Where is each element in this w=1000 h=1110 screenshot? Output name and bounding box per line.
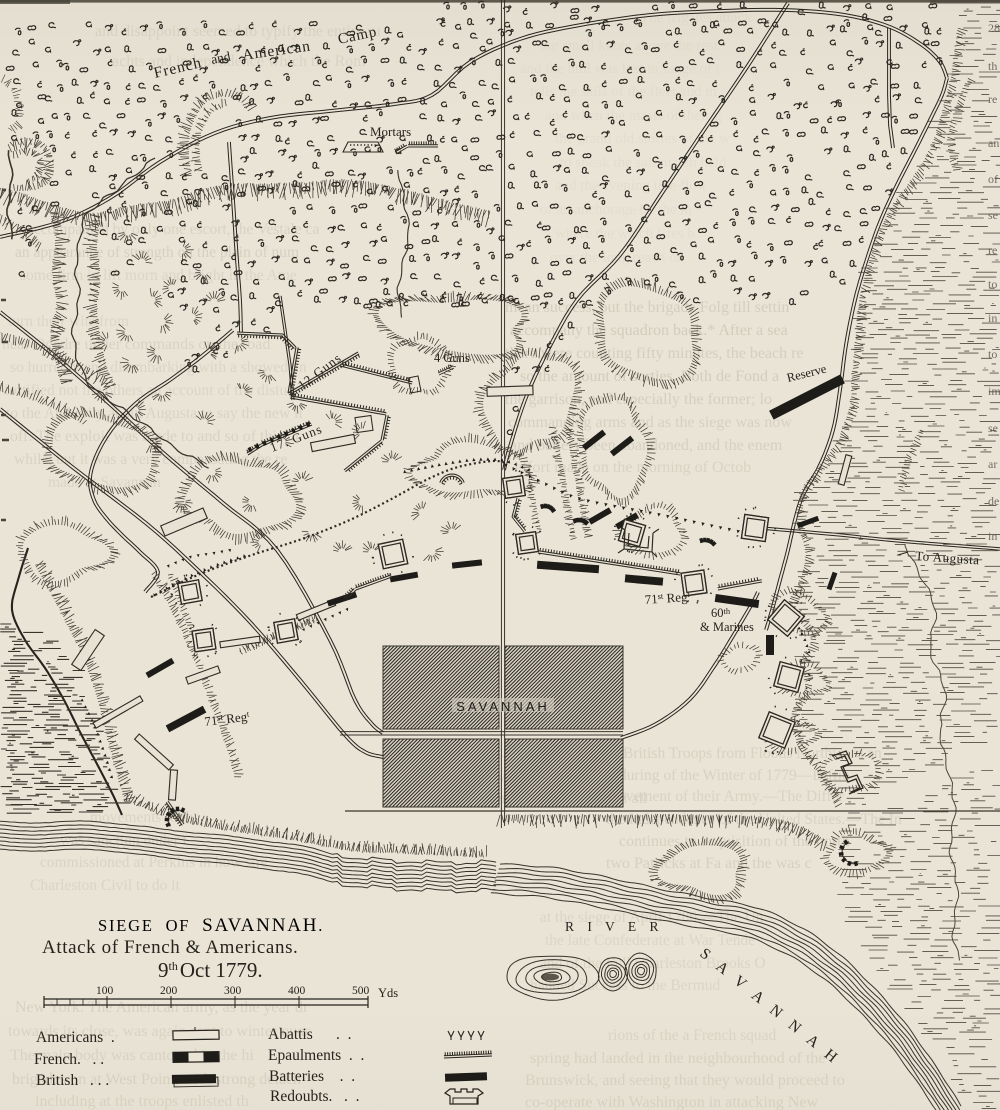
svg-text:to: to [988, 277, 997, 291]
svg-text:28: 28 [988, 21, 1000, 35]
svg-text:Batteries . .: Batteries . . [269, 1068, 355, 1085]
svg-text:off. The exploit was made to: off. The exploit was made to and so of t… [10, 428, 301, 445]
svg-text:and the hull was lost in range: and the hull was lost in range of t [520, 61, 721, 77]
svg-text:Abattis . .: Abattis . . [268, 1026, 352, 1043]
svg-text:where the watch fires b: where the watch fires b [555, 226, 695, 242]
svg-text:Charleston Civil to do it: Charleston Civil to do it [30, 877, 181, 894]
svg-text:near Ogedre under commands on: near Ogedre under commands on the road [2, 336, 270, 353]
svg-text:British Troops from Floods Nor: British Troops from Floods Northward an [623, 745, 882, 762]
svg-text:the garrison, and especially t: the garrison, and especially the former;… [505, 391, 772, 408]
svg-text:400: 400 [288, 985, 306, 997]
svg-text:Brunswick, and seeing that the: Brunswick, and seeing that they would pr… [525, 1072, 845, 1089]
svg-text:Attack of French & Americans.: Attack of French & Americans. [42, 937, 298, 958]
svg-text:British . . .: British . . . [36, 1072, 109, 1089]
svg-text:of: of [988, 172, 998, 186]
svg-text:including at the troops enlist: including at the troops enlisted th [35, 1093, 249, 1110]
svg-text:turn their wits from: turn their wits from [8, 313, 129, 330]
svg-text:Americans .: Americans . [36, 1029, 115, 1046]
svg-text:Epaulments . .: Epaulments . . [268, 1047, 364, 1064]
svg-text:SAVANNAH: SAVANNAH [456, 699, 550, 714]
svg-text:the late Confederate at War Te: the late Confederate at War Tende [545, 932, 755, 949]
svg-text:commanding arms and as the sie: commanding arms and as the siege was now [508, 414, 792, 431]
svg-text:ar: ar [988, 457, 997, 471]
svg-text:the Independence of the United: the Independence of the United States.—T… [606, 811, 902, 828]
svg-text:Yds: Yds [378, 986, 398, 1000]
svg-text:se: se [988, 208, 998, 222]
svg-text:two Patricks at Fa and the was: two Patricks at Fa and the was c [606, 855, 812, 872]
svg-text:500: 500 [352, 985, 370, 997]
svg-text:accompany the squadron back.*: accompany the squadron back.* After a se… [510, 322, 788, 339]
svg-text:in: in [988, 529, 997, 543]
svg-text:rions of the a French squad: rions of the a French squad [608, 1027, 777, 1044]
svg-text:th: th [988, 59, 997, 73]
svg-text:effort made on the morning of: effort made on the morning of Octob [515, 459, 751, 476]
svg-text:handed Success to the Bermud: handed Success to the Bermud [530, 977, 721, 994]
svg-text:and the evening tide flow: and the evening tide flow [555, 178, 708, 194]
svg-text:re: re [988, 92, 997, 106]
svg-text:to the Authority about Augusta: to the Authority about Augusta to say th… [6, 405, 303, 422]
svg-text:Mortars: Mortars [370, 124, 411, 139]
svg-text:& Marines: & Marines [700, 620, 754, 634]
svg-text:French. . .: French. . . [34, 1051, 104, 1068]
svg-text:SIEGE OF SAVANNAH.: SIEGE OF SAVANNAH. [98, 915, 324, 936]
svg-text:R I V E R: R I V E R [565, 919, 664, 934]
svg-text:300: 300 [224, 985, 242, 997]
svg-text:during of the Winter of 1779—D: during of the Winter of 1779—Diffic [619, 767, 849, 784]
svg-text:100: 100 [96, 985, 114, 997]
svg-text:mean success, but the brigade: mean success, but the brigade Folg till … [505, 299, 789, 316]
svg-text:co-operate with Washington in: co-operate with Washington in attacking … [525, 1094, 818, 1110]
svg-text:of an anchorage by the m: of an anchorage by the m [540, 202, 692, 218]
svg-text:Redoubts. . .: Redoubts. . . [270, 1088, 360, 1105]
svg-text:New York. The American army,: New York. The American army, as the year… [15, 999, 309, 1016]
svg-text:spring had landed in the neigh: spring had landed in the neighbourhood o… [530, 1050, 826, 1067]
svg-text:tells the sails of the fleet a: tells the sails of the fleet and m [530, 84, 717, 100]
svg-text:200: 200 [160, 985, 178, 997]
svg-text:4 Guns: 4 Guns [434, 351, 470, 365]
svg-text:accompanied by only one escort: accompanied by only one escort, the Vest… [27, 221, 320, 238]
svg-text:se: se [988, 421, 998, 435]
svg-text:71st Regt: 71st Regt [644, 589, 691, 607]
svg-text:and when the masts of their g: and when the masts of their g [545, 108, 722, 124]
